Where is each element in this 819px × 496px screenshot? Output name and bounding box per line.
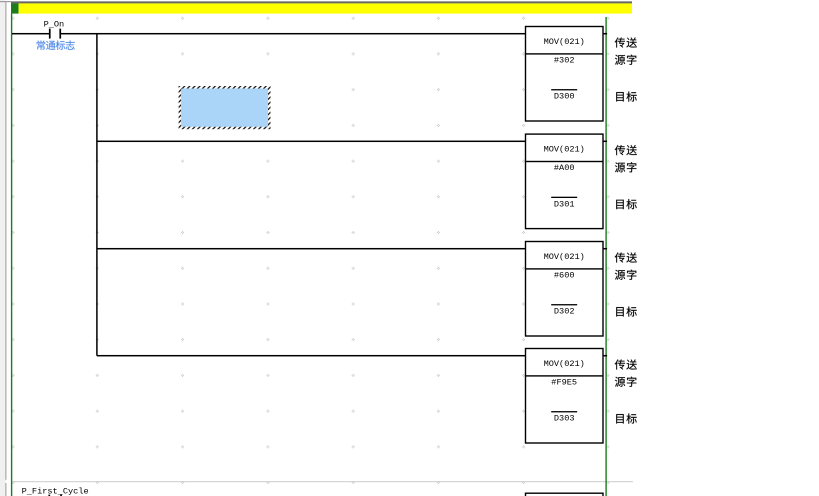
- svg-text:#302: #302: [554, 55, 575, 65]
- svg-text:#F9E5: #F9E5: [551, 377, 577, 387]
- svg-text:P_On: P_On: [44, 19, 65, 29]
- svg-text:#A00: #A00: [554, 163, 575, 173]
- svg-text:D302: D302: [554, 307, 575, 317]
- svg-text:D303: D303: [554, 414, 575, 424]
- svg-text:#600: #600: [554, 270, 575, 280]
- svg-text:MOV(021): MOV(021): [544, 37, 585, 47]
- svg-text:MOV(021): MOV(021): [544, 359, 585, 369]
- svg-text:D301: D301: [554, 199, 575, 209]
- svg-text:MOV(021): MOV(021): [544, 252, 585, 262]
- svg-text:MOV(021): MOV(021): [544, 145, 585, 155]
- svg-text:P_First_Cycle: P_First_Cycle: [22, 486, 89, 496]
- svg-text:D300: D300: [554, 92, 575, 102]
